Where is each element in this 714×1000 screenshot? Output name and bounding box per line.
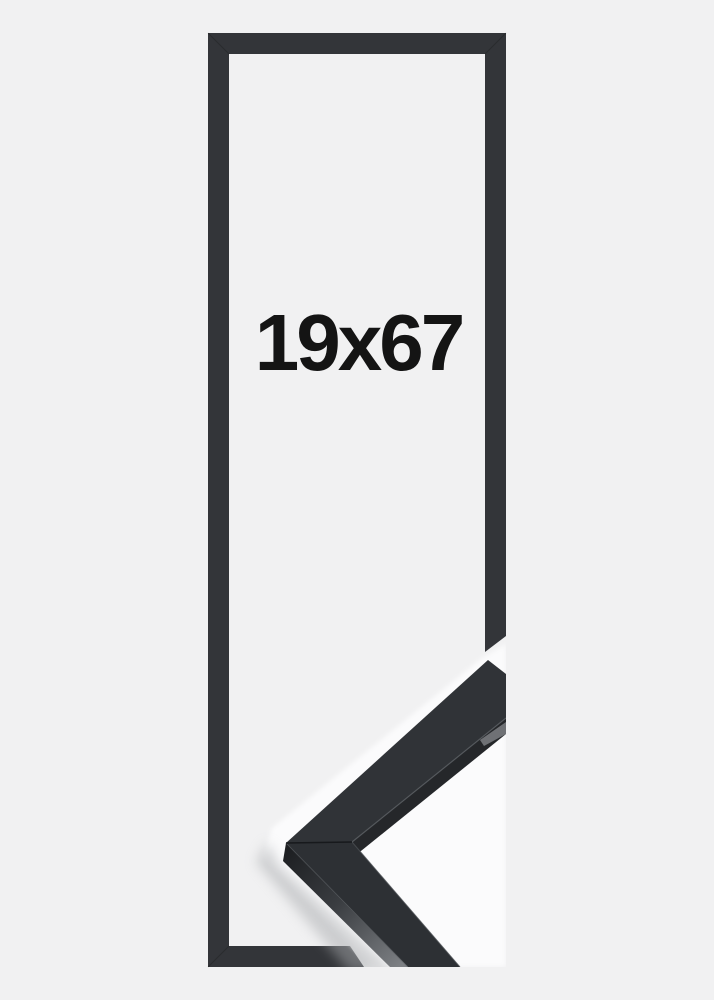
mitre-joint-seam: [286, 842, 352, 843]
product-image: 19x67: [0, 0, 714, 1000]
frame-top-bar: [208, 33, 506, 54]
frame-product-illustration: [0, 0, 714, 1000]
frame-left-bar: [208, 33, 229, 967]
frame-size-label: 19x67: [0, 303, 714, 383]
